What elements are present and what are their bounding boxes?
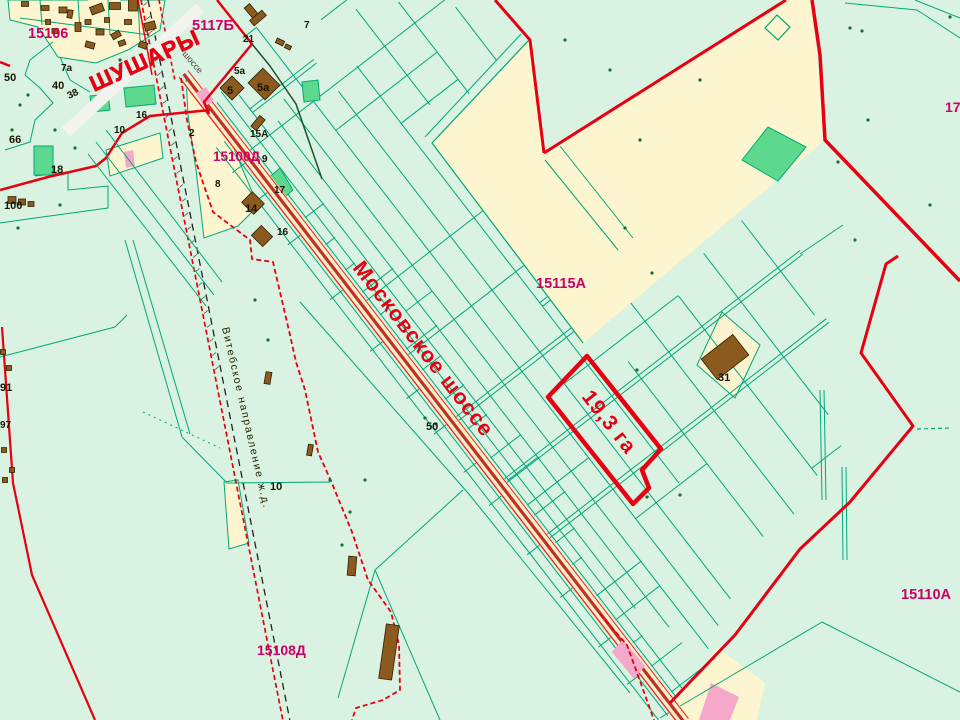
svg-text:10: 10 — [270, 481, 282, 493]
svg-text:10: 10 — [114, 125, 126, 136]
svg-text:5а: 5а — [234, 66, 246, 77]
svg-text:7а: 7а — [61, 63, 73, 74]
svg-text:15110А: 15110А — [901, 587, 952, 603]
svg-text:16: 16 — [277, 227, 289, 238]
svg-text:100: 100 — [4, 200, 22, 212]
svg-text:15106: 15106 — [28, 26, 68, 42]
svg-text:9: 9 — [262, 154, 268, 165]
svg-text:50: 50 — [4, 72, 16, 84]
svg-text:97: 97 — [0, 420, 12, 431]
svg-text:91: 91 — [0, 382, 12, 394]
svg-text:15115А: 15115А — [536, 276, 587, 292]
svg-text:21: 21 — [243, 34, 255, 45]
svg-text:15100Д: 15100Д — [213, 149, 261, 164]
svg-text:40: 40 — [52, 80, 64, 92]
svg-text:17: 17 — [274, 185, 286, 196]
svg-text:14: 14 — [245, 203, 258, 215]
svg-text:5: 5 — [227, 85, 233, 97]
svg-text:18: 18 — [51, 164, 63, 176]
svg-text:17: 17 — [945, 99, 960, 115]
svg-text:15А: 15А — [250, 129, 268, 140]
svg-text:2: 2 — [189, 128, 195, 139]
svg-text:8: 8 — [215, 179, 221, 190]
svg-text:5117Б: 5117Б — [192, 18, 234, 34]
svg-text:50: 50 — [426, 421, 438, 433]
svg-text:7: 7 — [304, 20, 310, 31]
svg-text:31: 31 — [718, 372, 730, 384]
svg-text:16: 16 — [136, 110, 148, 121]
svg-text:66: 66 — [9, 134, 21, 146]
svg-text:15108Д: 15108Д — [257, 642, 306, 658]
svg-text:5а: 5а — [257, 82, 270, 94]
